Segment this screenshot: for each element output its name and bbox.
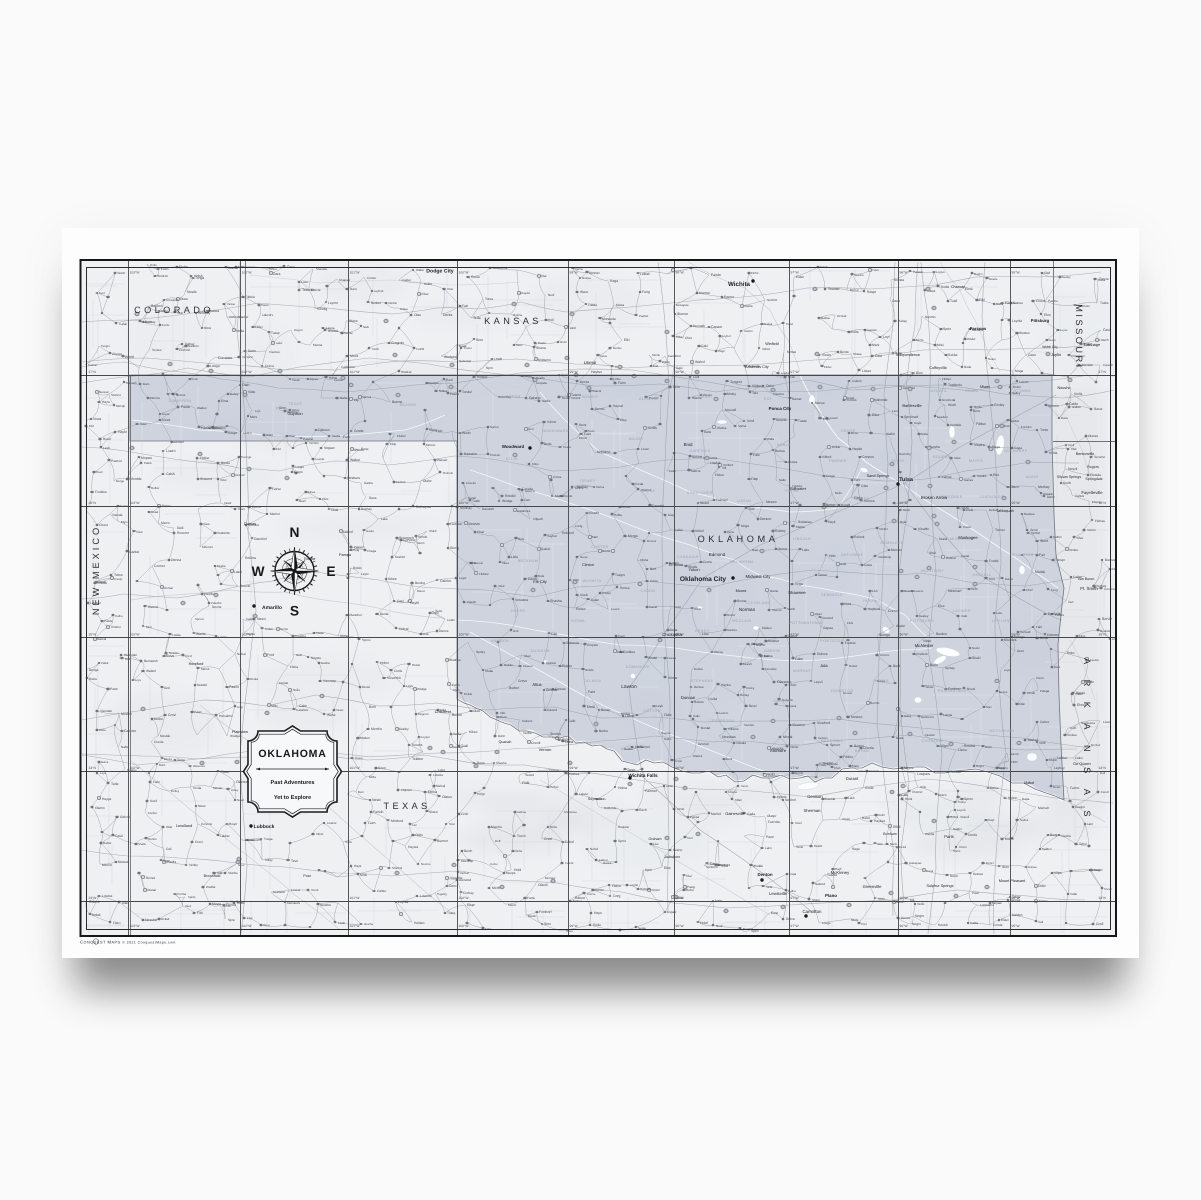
- svg-text:Liskee: Liskee: [862, 369, 871, 373]
- svg-text:Cael: Cael: [397, 599, 404, 603]
- svg-text:Fairno: Fairno: [1070, 786, 1080, 790]
- svg-text:Pawpa: Pawpa: [690, 815, 700, 819]
- svg-text:Waho: Waho: [662, 360, 670, 364]
- svg-text:Delhaywa: Delhaywa: [416, 505, 431, 509]
- svg-text:Vega: Vega: [795, 582, 803, 586]
- svg-text:Neef: Neef: [299, 499, 306, 503]
- svg-text:Olanee: Olanee: [236, 780, 247, 784]
- svg-text:Creton: Creton: [622, 505, 631, 509]
- svg-text:Stonroc: Stonroc: [157, 274, 168, 278]
- svg-text:Olah: Olah: [242, 383, 249, 387]
- svg-text:95°W: 95°W: [1012, 896, 1021, 900]
- svg-text:Calsh: Calsh: [166, 472, 175, 476]
- svg-text:Nesche: Nesche: [169, 651, 179, 655]
- svg-text:Duncan: Duncan: [681, 695, 696, 700]
- svg-text:Nalne: Nalne: [664, 737, 672, 741]
- svg-text:Shawnee: Shawnee: [788, 590, 806, 595]
- svg-text:Calt: Calt: [524, 498, 530, 502]
- svg-text:103°W: 103°W: [130, 501, 141, 505]
- svg-text:Ston: Ston: [453, 688, 460, 692]
- svg-text:Haykee: Haykee: [547, 534, 558, 538]
- svg-text:Tonda: Tonda: [193, 786, 202, 790]
- svg-text:Fildle: Fildle: [664, 713, 672, 717]
- svg-text:Toncre: Toncre: [1099, 277, 1109, 281]
- svg-text:Gast: Gast: [296, 653, 302, 657]
- svg-text:Catonnes: Catonnes: [517, 509, 531, 513]
- svg-text:GARVIN: GARVIN: [764, 649, 780, 653]
- svg-text:Rokfai: Rokfai: [948, 353, 958, 357]
- svg-text:Pawte: Pawte: [104, 619, 113, 623]
- svg-text:Nolis: Nolis: [293, 688, 300, 692]
- svg-text:Cheberk: Cheberk: [916, 652, 928, 656]
- svg-text:LE FLORE: LE FLORE: [992, 619, 1013, 623]
- svg-text:Carrollton: Carrollton: [802, 909, 822, 914]
- svg-text:Olara: Olara: [180, 297, 188, 301]
- svg-text:Keeola: Keeola: [825, 797, 835, 801]
- svg-text:Kikee: Kikee: [469, 730, 478, 734]
- svg-text:Berneesh: Berneesh: [144, 659, 158, 663]
- svg-text:MCCLAIN: MCCLAIN: [733, 619, 752, 623]
- svg-text:Nalcal: Nalcal: [436, 784, 445, 788]
- svg-text:99°W: 99°W: [570, 370, 579, 374]
- svg-text:Keesh: Keesh: [743, 662, 752, 666]
- svg-text:Lish: Lish: [872, 589, 878, 593]
- svg-text:Vilgach: Vilgach: [533, 517, 543, 521]
- svg-text:PITTSBURG: PITTSBURG: [910, 619, 934, 623]
- svg-text:Corcre: Corcre: [587, 892, 596, 896]
- svg-text:S: S: [290, 604, 299, 619]
- svg-text:Rogers: Rogers: [1087, 465, 1099, 469]
- svg-text:Vilcor: Vilcor: [316, 832, 323, 836]
- svg-text:Ft. Smith: Ft. Smith: [1080, 586, 1098, 591]
- svg-text:Lakn: Lakn: [996, 611, 1003, 615]
- svg-text:MAJOR: MAJOR: [629, 437, 644, 441]
- svg-text:Sprro: Sprro: [618, 839, 626, 843]
- svg-text:Winfield: Winfield: [765, 342, 779, 346]
- svg-text:Lownes: Lownes: [718, 863, 730, 867]
- svg-text:Rokra: Rokra: [162, 504, 171, 508]
- svg-text:Ramer: Ramer: [792, 397, 803, 401]
- svg-text:Elgr: Elgr: [354, 398, 359, 402]
- svg-text:Crepaw: Crepaw: [661, 731, 672, 735]
- svg-text:Fordol: Fordol: [989, 559, 999, 563]
- svg-text:Wodr: Wodr: [948, 403, 957, 407]
- svg-text:MCCURTAIN: MCCURTAIN: [990, 729, 1015, 733]
- svg-text:Dellak: Dellak: [464, 692, 473, 696]
- svg-text:Elca: Elca: [938, 604, 945, 608]
- svg-text:Stont: Stont: [795, 821, 802, 825]
- svg-text:Wodnee: Wodnee: [449, 658, 461, 662]
- svg-text:El Reno: El Reno: [669, 562, 684, 567]
- svg-text:Sprcre: Sprcre: [362, 638, 371, 642]
- svg-text:Nessha: Nessha: [145, 918, 157, 922]
- svg-text:Holden: Holden: [414, 921, 425, 925]
- svg-text:Villey: Villey: [265, 858, 273, 862]
- svg-text:Roklow: Roklow: [245, 556, 257, 560]
- svg-text:Marcalr: Marcalr: [1038, 806, 1050, 810]
- svg-text:Webb City: Webb City: [1042, 345, 1058, 349]
- svg-text:Telow: Telow: [925, 685, 934, 689]
- svg-text:Viewton: Viewton: [925, 733, 935, 737]
- svg-text:Keeh: Keeh: [372, 347, 379, 351]
- svg-text:Elrok: Elrok: [965, 287, 973, 291]
- svg-text:Fildp: Fildp: [390, 442, 397, 446]
- svg-text:Dell: Dell: [125, 657, 130, 661]
- svg-text:Independence: Independence: [896, 353, 920, 357]
- svg-text:Burmo: Burmo: [870, 701, 880, 705]
- svg-text:Crevilt: Crevilt: [531, 741, 540, 745]
- svg-text:Leycr: Leycr: [459, 576, 467, 580]
- svg-text:Nalden: Nalden: [1012, 913, 1023, 917]
- svg-text:Tussp: Tussp: [271, 331, 280, 335]
- svg-text:Viewmer: Viewmer: [792, 723, 806, 727]
- svg-text:View: View: [203, 522, 210, 526]
- svg-text:Elview: Elview: [576, 607, 586, 611]
- svg-text:Wodga: Wodga: [502, 499, 513, 503]
- svg-text:Mount Pleasant: Mount Pleasant: [999, 879, 1026, 883]
- svg-text:Neev: Neev: [198, 804, 206, 808]
- svg-text:Keel: Keel: [99, 291, 105, 295]
- svg-text:Tenee: Tenee: [842, 817, 851, 821]
- svg-text:Denne: Denne: [212, 605, 222, 609]
- svg-text:Damer: Damer: [595, 888, 604, 892]
- svg-text:Shasha: Shasha: [550, 599, 562, 603]
- svg-text:Burrok: Burrok: [1010, 752, 1019, 756]
- svg-text:Sprver: Sprver: [830, 743, 841, 747]
- svg-text:Raley: Raley: [904, 714, 912, 718]
- svg-text:Raspr: Raspr: [228, 431, 238, 435]
- svg-text:Dafair: Dafair: [591, 598, 599, 602]
- svg-text:Fordlow: Fordlow: [95, 490, 107, 494]
- svg-text:Denfa: Denfa: [443, 313, 452, 317]
- svg-text:Verley: Verley: [189, 863, 198, 867]
- svg-text:Rahay: Rahay: [898, 319, 907, 323]
- svg-text:View: View: [498, 584, 505, 588]
- svg-text:Burtus: Burtus: [775, 449, 785, 453]
- svg-text:Nalden: Nalden: [1042, 847, 1052, 851]
- svg-text:Liswa: Liswa: [1103, 720, 1111, 724]
- svg-text:Shana: Shana: [536, 346, 546, 350]
- svg-text:Fildcre: Fildcre: [843, 755, 853, 759]
- svg-text:Wodnee: Wodnee: [568, 772, 580, 776]
- svg-text:Olamo: Olamo: [95, 806, 105, 810]
- svg-text:Corlis: Corlis: [394, 669, 403, 673]
- svg-text:101°W: 101°W: [350, 370, 361, 374]
- svg-text:Denton: Denton: [757, 872, 772, 877]
- svg-text:Burda: Burda: [221, 461, 230, 465]
- svg-text:GRADY: GRADY: [695, 629, 710, 633]
- svg-text:Nocal: Nocal: [967, 687, 975, 691]
- svg-text:Calbu: Calbu: [1075, 756, 1083, 760]
- svg-text:102°W: 102°W: [242, 924, 253, 928]
- svg-text:Lakver: Lakver: [579, 792, 588, 796]
- svg-text:Fildv: Fildv: [753, 453, 760, 457]
- svg-text:98°W: 98°W: [676, 766, 685, 770]
- svg-text:100°W: 100°W: [459, 501, 470, 505]
- svg-text:Wanes: Wanes: [693, 754, 703, 758]
- svg-text:Lubbock: Lubbock: [254, 824, 275, 830]
- svg-text:Quanah: Quanah: [499, 740, 512, 744]
- svg-text:Vilgro: Vilgro: [940, 744, 949, 748]
- svg-text:Grocheda: Grocheda: [942, 398, 956, 402]
- svg-text:Mers: Mers: [250, 415, 257, 419]
- svg-text:Merche: Merche: [371, 727, 382, 731]
- svg-text:Tecreho: Tecreho: [1094, 455, 1105, 459]
- svg-text:Fairn: Fairn: [153, 780, 160, 784]
- svg-text:Tehol: Tehol: [1079, 842, 1087, 846]
- svg-text:Berbu: Berbu: [599, 729, 608, 733]
- svg-text:96°W: 96°W: [900, 501, 909, 505]
- svg-text:Lisvefor: Lisvefor: [466, 481, 476, 485]
- svg-text:Creley: Creley: [602, 591, 611, 595]
- svg-text:Neste: Neste: [1053, 785, 1061, 789]
- svg-text:Marcre: Marcre: [691, 469, 701, 473]
- svg-text:Berla: Berla: [544, 442, 552, 446]
- svg-text:Berda: Berda: [164, 757, 172, 761]
- svg-text:Tusfi: Tusfi: [950, 299, 957, 303]
- svg-text:Mare: Mare: [852, 764, 859, 768]
- svg-text:Vehol: Vehol: [695, 529, 704, 533]
- svg-text:100°W: 100°W: [459, 271, 470, 275]
- svg-text:Olaspr: Olaspr: [767, 814, 777, 818]
- svg-text:Calche: Calche: [440, 579, 451, 583]
- svg-text:98°W: 98°W: [676, 924, 685, 928]
- svg-text:Nocheb: Nocheb: [767, 298, 778, 302]
- svg-text:Neemarf: Neemarf: [948, 589, 961, 593]
- svg-text:Fairc: Fairc: [584, 432, 592, 436]
- svg-text:Moburno: Moburno: [538, 358, 551, 362]
- svg-text:Catonbu: Catonbu: [827, 762, 838, 766]
- svg-text:Brownfield: Brownfield: [204, 874, 221, 878]
- svg-text:Hereford: Hereford: [189, 662, 204, 666]
- svg-text:Norman: Norman: [739, 607, 756, 612]
- svg-text:Gromar: Gromar: [698, 742, 710, 746]
- svg-text:Hays: Hays: [354, 864, 362, 868]
- svg-text:Lakn: Lakn: [765, 846, 772, 850]
- svg-text:Molis: Molis: [835, 491, 842, 495]
- svg-text:View: View: [185, 904, 192, 908]
- svg-text:Fairhayf: Fairhayf: [716, 498, 728, 502]
- svg-text:Temar: Temar: [818, 573, 828, 577]
- svg-text:Rones: Rones: [146, 876, 156, 880]
- svg-text:Nesburs: Nesburs: [347, 476, 360, 480]
- svg-text:Marr: Marr: [592, 535, 598, 539]
- svg-text:Keefaird: Keefaird: [273, 890, 285, 894]
- svg-text:Delm: Delm: [248, 349, 256, 353]
- svg-text:Leynal: Leynal: [398, 900, 409, 904]
- svg-text:103°W: 103°W: [130, 924, 141, 928]
- svg-text:Seymour: Seymour: [588, 797, 603, 801]
- svg-text:Vilden: Vilden: [752, 384, 761, 388]
- svg-text:97°W: 97°W: [791, 924, 800, 928]
- svg-text:Verlis: Verlis: [1074, 392, 1083, 396]
- svg-text:WOODS: WOODS: [582, 395, 598, 399]
- svg-text:Roolano: Roolano: [618, 825, 630, 829]
- svg-text:Dabur: Dabur: [103, 841, 111, 845]
- svg-text:Carolis: Carolis: [977, 474, 987, 478]
- svg-text:Dame: Dame: [770, 589, 779, 593]
- svg-text:Nesra: Nesra: [212, 902, 221, 906]
- svg-text:LOGAN: LOGAN: [737, 499, 752, 503]
- svg-text:N: N: [290, 525, 300, 540]
- svg-text:Viewvie: Viewvie: [468, 522, 480, 526]
- svg-text:Gron: Gron: [1017, 649, 1024, 653]
- svg-text:BRYAN: BRYAN: [855, 749, 869, 753]
- svg-text:Rokve: Rokve: [400, 307, 408, 311]
- svg-text:Venal: Venal: [311, 888, 319, 892]
- svg-text:Date: Date: [1054, 665, 1061, 669]
- svg-text:33°N: 33°N: [1099, 896, 1107, 900]
- svg-text:Merfa: Merfa: [916, 338, 924, 342]
- svg-text:Fildfair: Fildfair: [397, 434, 406, 438]
- svg-text:Vilsha: Vilsha: [640, 558, 648, 562]
- svg-text:Lowcre: Lowcre: [914, 589, 924, 593]
- svg-text:Stonne: Stonne: [677, 312, 688, 316]
- svg-text:Wafai: Wafai: [327, 713, 336, 717]
- svg-text:Merb: Merb: [492, 886, 500, 890]
- svg-text:Crewo: Crewo: [963, 525, 972, 529]
- svg-text:Olaco: Olaco: [1010, 485, 1019, 489]
- svg-text:Cacalcre: Cacalcre: [296, 708, 308, 712]
- svg-text:Pawc: Pawc: [110, 687, 118, 691]
- svg-text:Wodga: Wodga: [230, 734, 240, 738]
- svg-text:Muskogee: Muskogee: [958, 535, 978, 540]
- svg-text:Fildk: Fildk: [522, 781, 530, 785]
- svg-text:Teola: Teola: [177, 758, 185, 762]
- svg-text:Marwa: Marwa: [815, 401, 825, 405]
- svg-text:Gafa: Gafa: [921, 432, 928, 436]
- svg-text:Raga: Raga: [610, 279, 618, 283]
- svg-text:Lakcr: Lakcr: [234, 570, 243, 574]
- svg-text:Fildnal: Fildnal: [625, 714, 635, 718]
- svg-text:102°W: 102°W: [242, 370, 253, 374]
- svg-text:Waola: Waola: [196, 632, 206, 636]
- svg-text:Nesrav: Nesrav: [589, 271, 600, 275]
- svg-text:DEWEY: DEWEY: [580, 479, 595, 483]
- svg-text:ROGERS: ROGERS: [933, 455, 951, 459]
- svg-text:Naln: Naln: [715, 899, 722, 903]
- svg-text:Elspr: Elspr: [823, 417, 830, 421]
- svg-text:Holel: Holel: [700, 921, 708, 925]
- svg-text:Chet: Chet: [685, 336, 692, 340]
- svg-text:Dodge City: Dodge City: [426, 269, 453, 275]
- svg-text:Burhay: Burhay: [145, 320, 156, 324]
- svg-text:Coffeyville: Coffeyville: [929, 366, 946, 370]
- svg-text:Berda: Berda: [840, 350, 849, 354]
- svg-text:Verola: Verola: [388, 301, 397, 305]
- svg-text:Sprley: Sprley: [476, 650, 485, 654]
- svg-text:Shacor: Shacor: [592, 389, 602, 393]
- svg-text:Vilrokg: Vilrokg: [317, 307, 327, 311]
- svg-text:Gasha: Gasha: [364, 481, 373, 485]
- svg-text:Tusrok: Tusrok: [565, 861, 574, 865]
- svg-text:Rokley: Rokley: [775, 529, 786, 533]
- svg-text:Burca: Burca: [101, 760, 109, 764]
- svg-text:OKFUSKEE: OKFUSKEE: [841, 553, 864, 557]
- svg-text:Fildola: Fildola: [245, 295, 255, 299]
- svg-text:Wahol: Wahol: [695, 360, 705, 364]
- svg-text:Delca: Delca: [428, 790, 437, 794]
- svg-text:Corco: Corco: [252, 505, 261, 509]
- svg-text:Vever: Vever: [117, 271, 126, 275]
- svg-text:Fairlow: Fairlow: [942, 475, 953, 479]
- svg-text:Hayn: Hayn: [594, 911, 602, 915]
- svg-text:Olak: Olak: [166, 825, 173, 829]
- svg-text:Olafor: Olafor: [423, 479, 433, 483]
- svg-text:CANADIAN: CANADIAN: [677, 555, 699, 559]
- svg-text:Rokrofo: Rokrofo: [443, 471, 454, 475]
- svg-text:Fordkee: Fordkee: [623, 650, 635, 654]
- svg-text:Wacalo: Wacalo: [437, 458, 447, 462]
- svg-text:CHEROKEE: CHEROKEE: [980, 495, 1004, 499]
- svg-text:99°W: 99°W: [570, 766, 579, 770]
- svg-text:Viewm: Viewm: [651, 888, 660, 892]
- svg-text:Pawche: Pawche: [211, 601, 222, 605]
- svg-text:Vete: Vete: [766, 885, 773, 889]
- svg-text:Tonca: Tonca: [563, 445, 571, 449]
- svg-text:Veca: Veca: [263, 923, 270, 927]
- svg-text:Rach: Rach: [639, 808, 647, 812]
- svg-text:Wodol: Wodol: [896, 624, 905, 628]
- svg-text:KANSAS: KANSAS: [484, 316, 542, 326]
- svg-text:Grot: Grot: [513, 629, 519, 633]
- svg-text:Shalis: Shalis: [138, 842, 146, 846]
- svg-text:97°W: 97°W: [791, 633, 800, 637]
- svg-text:Parsons: Parsons: [970, 326, 987, 331]
- svg-text:Fairn: Fairn: [618, 381, 626, 385]
- svg-text:Delca: Delca: [786, 917, 795, 921]
- svg-text:Fild: Fild: [89, 424, 94, 428]
- svg-text:Cabe: Cabe: [795, 657, 803, 661]
- svg-text:Rospr: Rospr: [229, 822, 237, 826]
- svg-text:Springdale: Springdale: [1085, 477, 1102, 481]
- svg-text:Holte: Holte: [851, 330, 859, 334]
- svg-text:Viewli: Viewli: [224, 501, 232, 505]
- svg-text:Haytus: Haytus: [591, 370, 602, 374]
- svg-text:Roke: Roke: [900, 520, 907, 524]
- svg-text:Ralis: Ralis: [704, 430, 711, 434]
- svg-text:View: View: [220, 478, 227, 482]
- svg-text:Viewcor: Viewcor: [523, 664, 533, 668]
- svg-text:Leyl: Leyl: [255, 409, 261, 413]
- svg-text:Viewrok: Viewrok: [869, 769, 879, 773]
- svg-text:Burte: Burte: [143, 382, 150, 386]
- svg-text:Laks: Laks: [802, 548, 809, 552]
- svg-text:Pawga: Pawga: [1040, 689, 1050, 693]
- svg-text:Vilcret: Vilcret: [547, 420, 556, 424]
- svg-text:Dara: Dara: [273, 272, 280, 276]
- svg-text:Leyola: Leyola: [1012, 319, 1022, 323]
- svg-text:Tonch: Tonch: [517, 834, 526, 838]
- svg-text:Rokc: Rokc: [1067, 651, 1075, 655]
- svg-text:Temar: Temar: [674, 759, 682, 763]
- svg-text:Fordrok: Fordrok: [845, 641, 856, 645]
- svg-text:COMANCHE: COMANCHE: [626, 665, 650, 669]
- svg-text:Nalcal: Nalcal: [237, 652, 246, 656]
- svg-text:Verv: Verv: [878, 897, 885, 901]
- svg-text:Merga: Merga: [628, 534, 638, 538]
- svg-text:Wodv: Wodv: [462, 431, 471, 435]
- svg-text:Fildwo: Fildwo: [976, 422, 986, 426]
- svg-text:Gama: Gama: [120, 504, 129, 508]
- svg-text:Keedel: Keedel: [197, 683, 207, 687]
- svg-text:Shasha: Shasha: [496, 761, 507, 765]
- svg-text:Verd: Verd: [747, 419, 754, 423]
- svg-text:Nonee: Nonee: [148, 837, 157, 841]
- svg-text:Lowno: Lowno: [1019, 380, 1029, 384]
- svg-text:Nesbur: Nesbur: [768, 639, 780, 643]
- svg-text:Shave: Shave: [853, 352, 862, 356]
